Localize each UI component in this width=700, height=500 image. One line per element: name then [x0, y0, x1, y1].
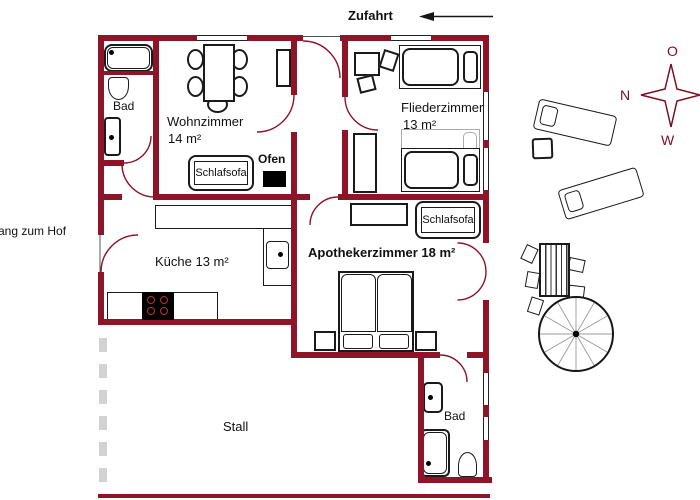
wall	[483, 440, 489, 483]
parasol-icon	[539, 297, 613, 371]
sleeper-sofa-label-box: Schlafsofa	[194, 161, 248, 185]
bed-mattress	[402, 48, 459, 86]
dresser	[350, 203, 408, 226]
compass-star-icon	[641, 64, 700, 127]
oven	[263, 171, 286, 187]
dining-chair	[187, 76, 204, 97]
direction-arrow-icon	[419, 12, 493, 21]
desk	[354, 52, 380, 76]
floor-plan: Zufahrt ang zum Hof Stall O N W Bad	[0, 0, 700, 500]
stove-burner	[160, 307, 168, 315]
wall	[98, 35, 197, 41]
hof-entrance-label: ang zum Hof	[0, 224, 66, 239]
door-arc	[124, 136, 151, 163]
toilet	[108, 77, 129, 100]
stall-dashed-boundary	[99, 338, 107, 494]
wall	[153, 35, 159, 200]
window	[197, 35, 247, 41]
garden-chair	[520, 244, 539, 264]
nightstand	[415, 331, 437, 351]
dining-table	[203, 44, 235, 102]
lounger-bed	[557, 167, 644, 221]
room-label-kueche: Küche 13 m²	[155, 254, 229, 270]
wall	[483, 405, 489, 417]
door-arc	[345, 97, 378, 130]
wall	[483, 35, 489, 92]
side-table	[532, 138, 554, 160]
sleeper-sofa-label-box: Schlafsofa	[421, 207, 475, 233]
wall	[483, 140, 489, 148]
oven-label: Ofen	[258, 152, 285, 167]
room-area-fliederzimmer: 13 m²	[403, 117, 436, 133]
bed-pillow	[379, 334, 409, 349]
wall	[483, 190, 489, 243]
kitchen-counter	[155, 205, 293, 229]
garden-chair	[525, 271, 541, 289]
stove	[142, 292, 174, 320]
bed-pillow	[463, 51, 478, 83]
compass-north-label: N	[620, 87, 630, 103]
room-label-apothekerzimmer: Apothekerzimmer 18 m²	[308, 245, 455, 261]
door-arc	[257, 95, 294, 132]
door-arc	[122, 164, 155, 197]
window	[391, 35, 431, 41]
dining-chair	[187, 49, 204, 70]
room-label-bad-top: Bad	[113, 99, 134, 114]
wall	[342, 41, 348, 97]
nightstand	[314, 331, 336, 351]
wall	[291, 132, 297, 358]
garden-table	[539, 243, 570, 297]
compass-west-label: W	[661, 132, 674, 148]
wall	[297, 194, 310, 200]
shelf	[276, 49, 291, 87]
room-label-bad-bottom: Bad	[444, 409, 465, 424]
bed-pillow	[463, 154, 478, 186]
wall	[483, 352, 489, 373]
stove-burner	[160, 296, 168, 304]
compass-east-label: O	[667, 43, 678, 59]
bed-pillow	[343, 334, 373, 349]
sink-drain	[428, 395, 433, 400]
wall	[483, 300, 489, 358]
stall-label: Stall	[223, 419, 248, 435]
stove-burner	[147, 307, 155, 315]
wall	[418, 477, 492, 483]
lounger-pillow	[564, 189, 585, 213]
window	[483, 417, 489, 440]
garden-chair	[527, 296, 544, 315]
room-label-fliederzimmer: Fliederzimmer	[401, 100, 483, 116]
lounger-pillow	[539, 104, 559, 127]
room-label-wohnzimmer: Wohnzimmer	[167, 114, 243, 130]
sink-drain	[109, 135, 114, 140]
sink	[423, 382, 443, 413]
wall	[291, 35, 297, 95]
door-arc	[310, 197, 338, 225]
garden-chair	[568, 285, 585, 300]
wall	[155, 194, 297, 200]
wall	[98, 35, 104, 235]
garden-chair	[567, 257, 585, 273]
bathtub-rim	[423, 432, 447, 474]
window	[483, 92, 489, 140]
wall	[342, 130, 348, 200]
wall	[98, 272, 104, 325]
wall	[418, 352, 424, 483]
wardrobe	[353, 133, 377, 193]
wall	[98, 494, 490, 498]
wall	[98, 319, 297, 325]
door-arc	[440, 355, 467, 382]
toilet	[458, 452, 477, 477]
zufahrt-label: Zufahrt	[348, 8, 393, 24]
door-arc	[101, 235, 138, 272]
bathtub-faucet	[109, 50, 114, 55]
desk-chair	[378, 49, 399, 72]
partition-ledge	[104, 71, 153, 75]
wall	[431, 35, 489, 41]
window	[483, 148, 489, 190]
window	[483, 373, 489, 405]
bathtub-faucet	[426, 461, 431, 466]
door-arc	[458, 243, 487, 272]
bed-mattress	[377, 274, 412, 332]
stove-burner	[147, 296, 155, 304]
bed-mattress	[341, 274, 376, 332]
door-arc	[458, 272, 487, 301]
room-area-wohnzimmer: 14 m²	[168, 131, 201, 147]
kitchen-sink-drain	[278, 252, 283, 257]
bed-mattress	[404, 151, 459, 189]
wall	[348, 194, 489, 200]
door-arc	[303, 41, 340, 78]
desk-chair	[356, 74, 376, 94]
